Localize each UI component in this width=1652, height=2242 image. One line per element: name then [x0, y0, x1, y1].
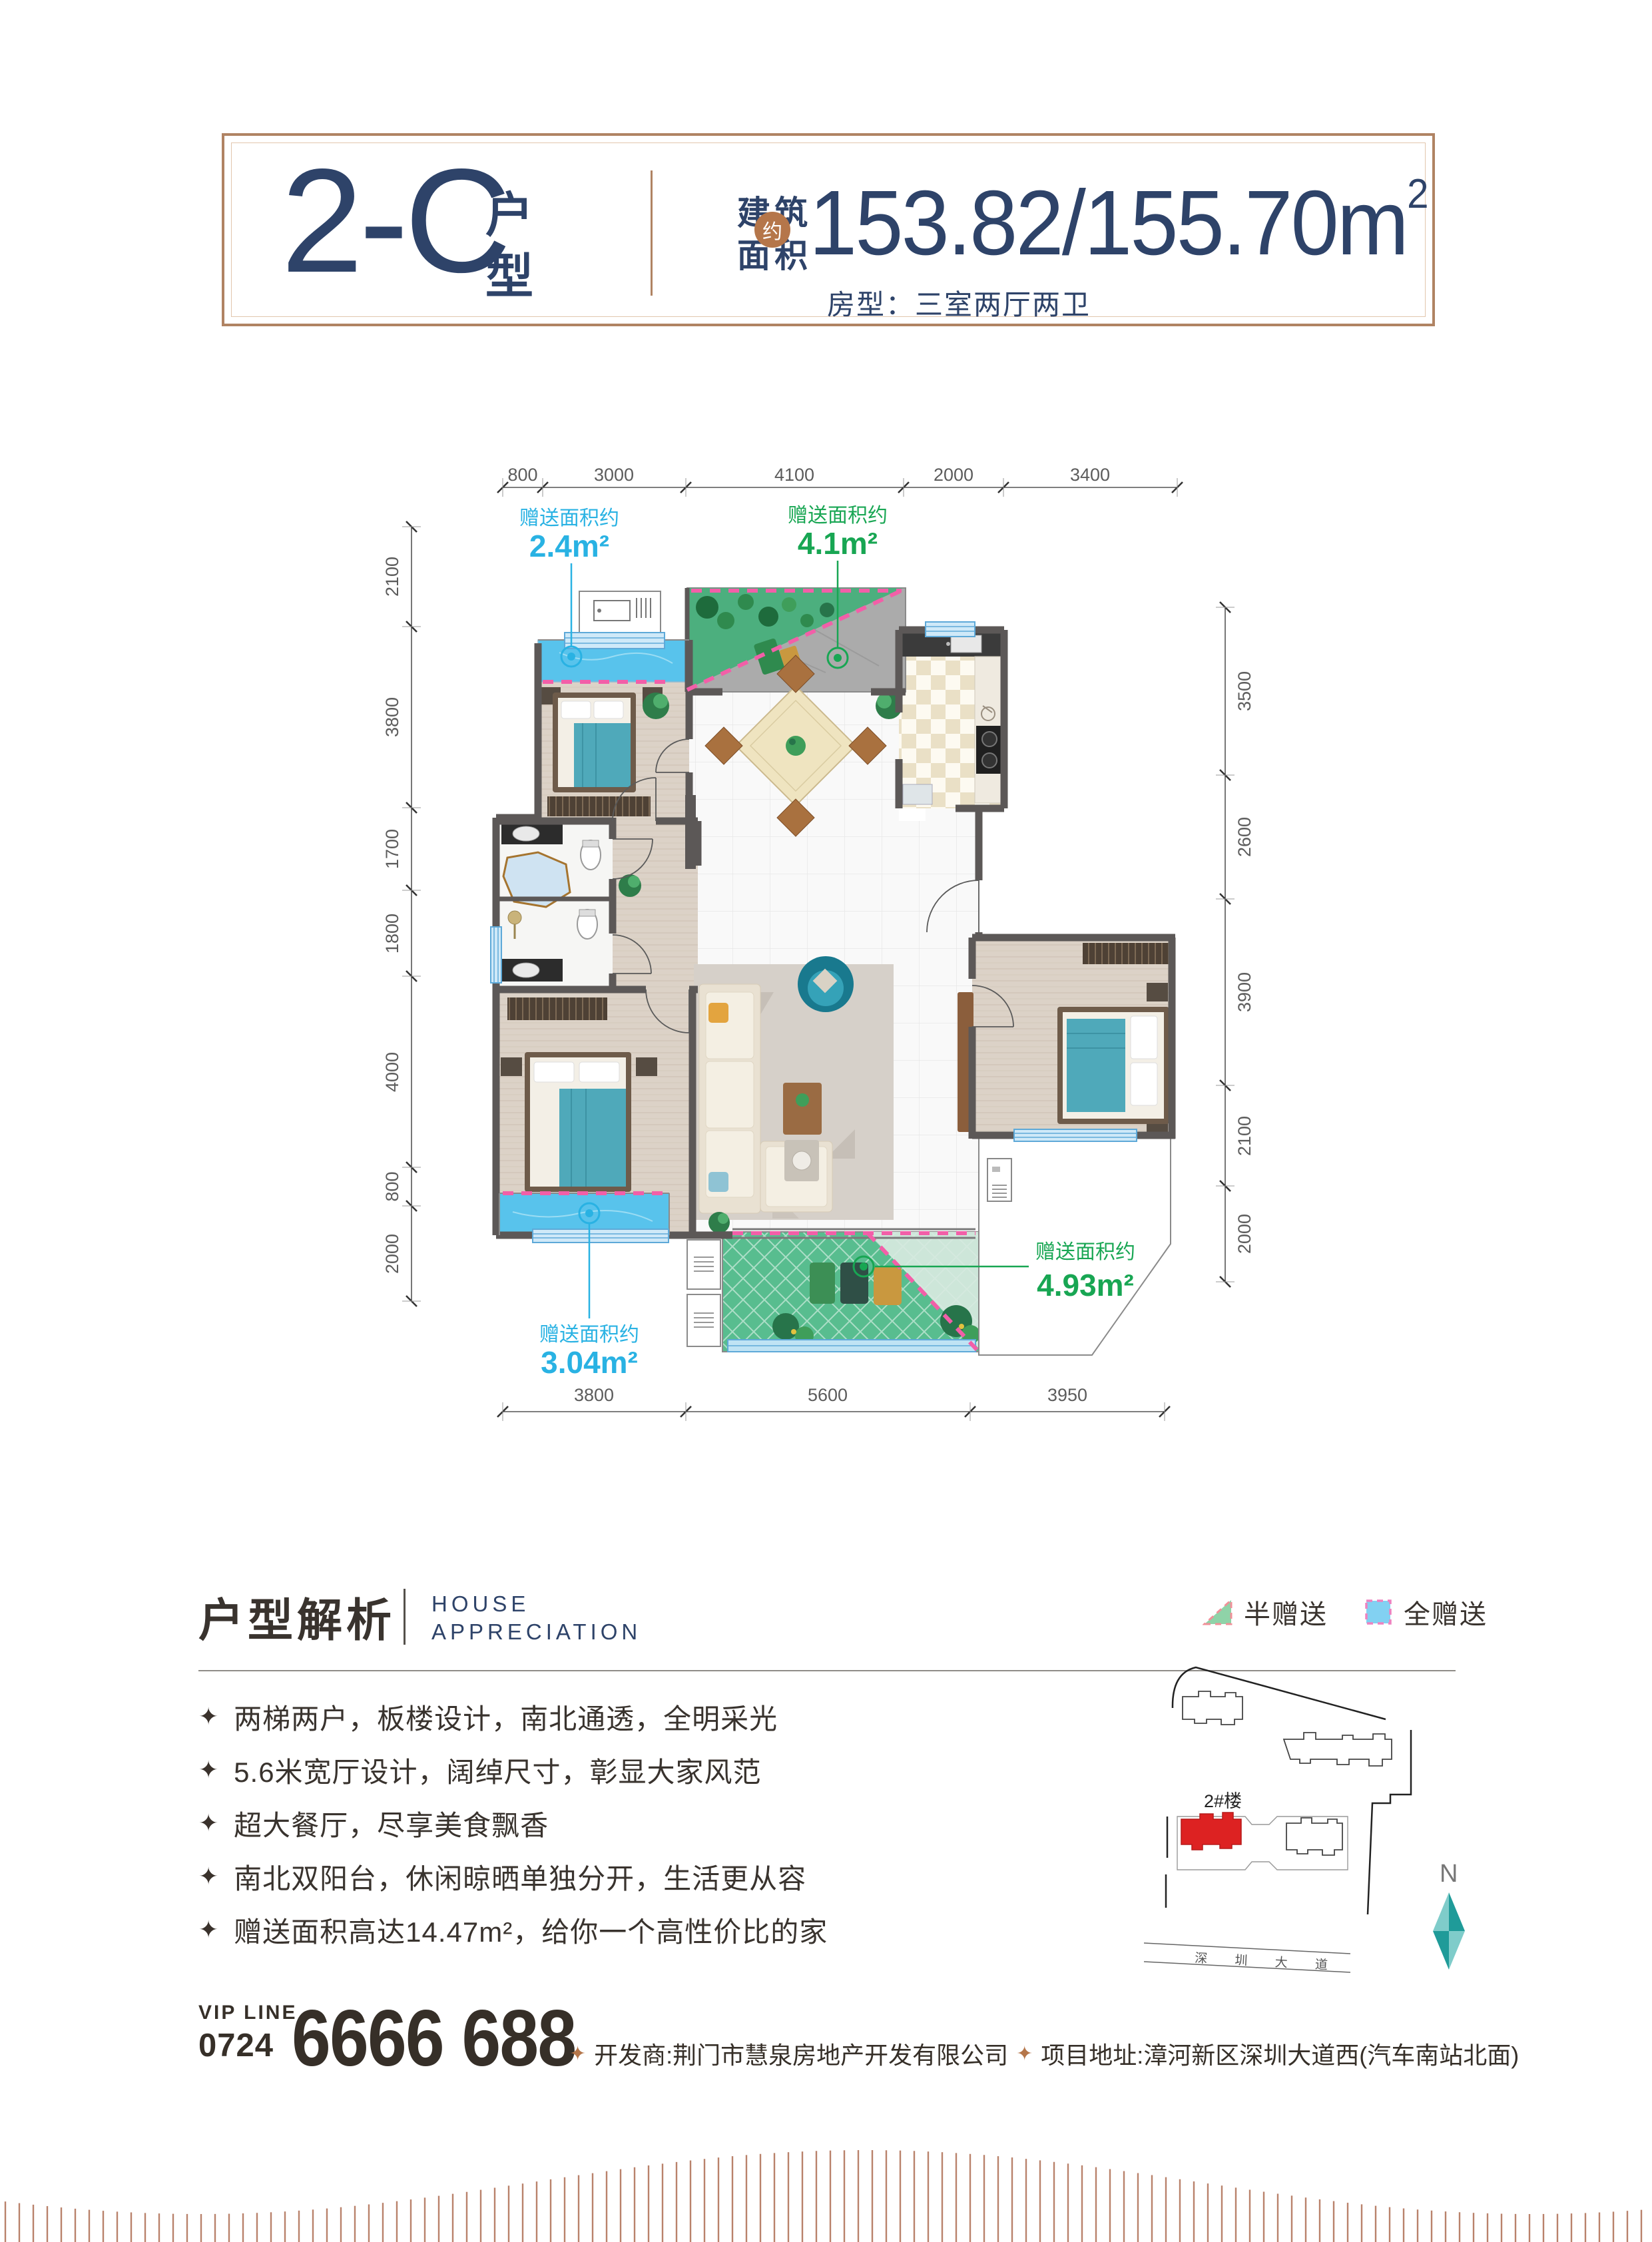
utility-boxes — [687, 1240, 720, 1346]
highlighted-building — [1181, 1813, 1241, 1850]
road: 深 圳 大 道 — [1144, 1943, 1350, 1973]
dim-right: 2000 — [1235, 1214, 1254, 1254]
wardrobe — [1083, 943, 1169, 964]
bullet-star-icon: ✦ — [198, 1703, 219, 1731]
unit-type-code: 2-C — [281, 141, 507, 301]
dim-left: 4000 — [382, 1052, 402, 1092]
selling-points-list: ✦两梯两户，板楼设计，南北通透，全明采光 ✦5.6米宽厅设计，阔绰尺寸，彰显大家… — [198, 1690, 1131, 1956]
building-outline — [1183, 1691, 1242, 1725]
north-compass-icon: N — [1433, 1860, 1465, 1970]
vip-phone-number: 6666 688 — [292, 1992, 575, 2084]
dim-top: 2000 — [934, 465, 973, 485]
vip-line-label: VIP LINE — [198, 2003, 297, 2023]
lounge-chair — [810, 1262, 835, 1304]
unit-header-card: 2-C 户型 建筑 面积 约 153.82/155.70m2 房型：三室两厅两卫 — [222, 133, 1435, 326]
dim-right: 3900 — [1235, 972, 1254, 1012]
bullet-star-icon: ✦ — [198, 1756, 219, 1784]
terrace-south — [722, 1232, 980, 1352]
svg-text:赠送面积约: 赠送面积约 — [519, 507, 619, 529]
svg-text:3.04m²: 3.04m² — [541, 1345, 638, 1380]
dim-top: 3000 — [594, 465, 634, 485]
site-map-svg: 2#楼 深 圳 大 道 N — [1103, 1645, 1502, 1978]
bullet-star-icon: ✦ — [198, 1862, 219, 1890]
wardrobe — [547, 796, 651, 816]
entry-floor — [926, 808, 979, 835]
building-outline — [1284, 1733, 1392, 1766]
unit-type-label: 户型 — [485, 185, 537, 308]
svg-text:赠送面积约: 赠送面积约 — [1035, 1241, 1135, 1263]
dim-right: 2100 — [1235, 1116, 1254, 1156]
dim-left: 800 — [382, 1171, 402, 1201]
wave-decoration-svg — [0, 2112, 1652, 2242]
analysis-subtitle: HOUSE APPRECIATION — [431, 1590, 641, 1646]
dim-bottom: 3950 — [1047, 1385, 1087, 1405]
building-label: 2#楼 — [1204, 1791, 1242, 1811]
floorplan-poster: 2-C 户型 建筑 面积 约 153.82/155.70m2 房型：三室两厅两卫 — [0, 0, 1652, 2242]
lounge-chair — [874, 1266, 902, 1305]
svg-text:赠送面积约: 赠送面积约 — [539, 1324, 639, 1346]
full-gift-label: 全赠送 — [1404, 1593, 1488, 1631]
vip-line-block: VIP LINE 0724 — [198, 2003, 297, 2062]
dim-left: 2000 — [382, 1234, 402, 1274]
vip-area-code: 0724 — [198, 2030, 297, 2062]
developer-info: 开发商:荆门市慧泉房地产开发有限公司 — [594, 2036, 1008, 2071]
coffee-table — [783, 1083, 822, 1135]
hallway-floor — [613, 821, 698, 989]
svg-text:2.4m²: 2.4m² — [529, 529, 609, 563]
dim-right: 3500 — [1235, 671, 1254, 711]
building-outline — [1286, 1818, 1342, 1855]
dim-top: 3400 — [1070, 465, 1110, 485]
project-address: 项目地址:漳河新区深圳大道西(汽车南站北面) — [1041, 2036, 1519, 2071]
bullet-star-icon: ✦ — [198, 1809, 219, 1837]
footer-diamond-icon: ✦ — [1016, 2042, 1033, 2066]
list-item: ✦赠送面积高达14.47m²，给你一个高性价比的家 — [198, 1903, 1131, 1956]
dim-bottom: 5600 — [808, 1385, 848, 1405]
footer-info: ✦ 开发商:荆门市慧泉房地产开发有限公司 ✦ 项目地址:漳河新区深圳大道西(汽车… — [569, 2036, 1519, 2071]
analysis-title-divider — [404, 1589, 406, 1645]
list-item: ✦5.6米宽厅设计，阔绰尺寸，彰显大家风范 — [198, 1743, 1131, 1797]
list-item: ✦两梯两户，板楼设计，南北通透，全明采光 — [198, 1690, 1131, 1743]
list-item: ✦超大餐厅，尽享美食飘香 — [198, 1797, 1131, 1850]
dim-left: 1700 — [382, 829, 402, 869]
room-layout-info: 房型：三室两厅两卫 — [827, 282, 1091, 323]
header-divider — [651, 170, 653, 296]
dim-top: 800 — [507, 465, 537, 485]
dim-left: 1800 — [382, 914, 402, 954]
floor-plan: 800 3000 4100 2000 3400 3800 5600 3950 2… — [360, 426, 1404, 1465]
gift-legend: 半赠送 全赠送 — [1203, 1593, 1513, 1631]
approx-badge: 约 — [754, 212, 790, 248]
svg-text:4.1m²: 4.1m² — [798, 526, 878, 561]
wave-decoration — [0, 2112, 1652, 2242]
built-area-value: 153.82/155.70m2 — [809, 170, 1427, 276]
bullet-star-icon: ✦ — [198, 1916, 219, 1944]
dim-left: 3800 — [382, 697, 402, 737]
dim-left: 2100 — [382, 557, 402, 597]
analysis-title: 户型解析 — [198, 1583, 396, 1649]
footer-diamond-icon: ✦ — [569, 2042, 586, 2066]
site-map: 2#楼 深 圳 大 道 N — [1103, 1645, 1502, 1978]
floor-plan-svg: 800 3000 4100 2000 3400 3800 5600 3950 2… — [360, 426, 1404, 1465]
half-gift-label: 半赠送 — [1244, 1593, 1328, 1631]
list-item: ✦南北双阳台，休闲晾晒单独分开，生活更从容 — [198, 1850, 1131, 1903]
svg-text:4.93m²: 4.93m² — [1037, 1268, 1134, 1302]
dim-right: 2600 — [1235, 817, 1254, 857]
wardrobe — [507, 997, 607, 1020]
svg-text:赠送面积约: 赠送面积约 — [788, 505, 888, 527]
half-gift-icon — [1203, 1598, 1233, 1626]
dim-top: 4100 — [774, 465, 814, 485]
road-label: 深 圳 大 道 — [1195, 1951, 1340, 1973]
north-label: N — [1440, 1860, 1458, 1888]
full-gift-icon — [1364, 1598, 1393, 1626]
dim-bottom: 3800 — [574, 1385, 614, 1405]
